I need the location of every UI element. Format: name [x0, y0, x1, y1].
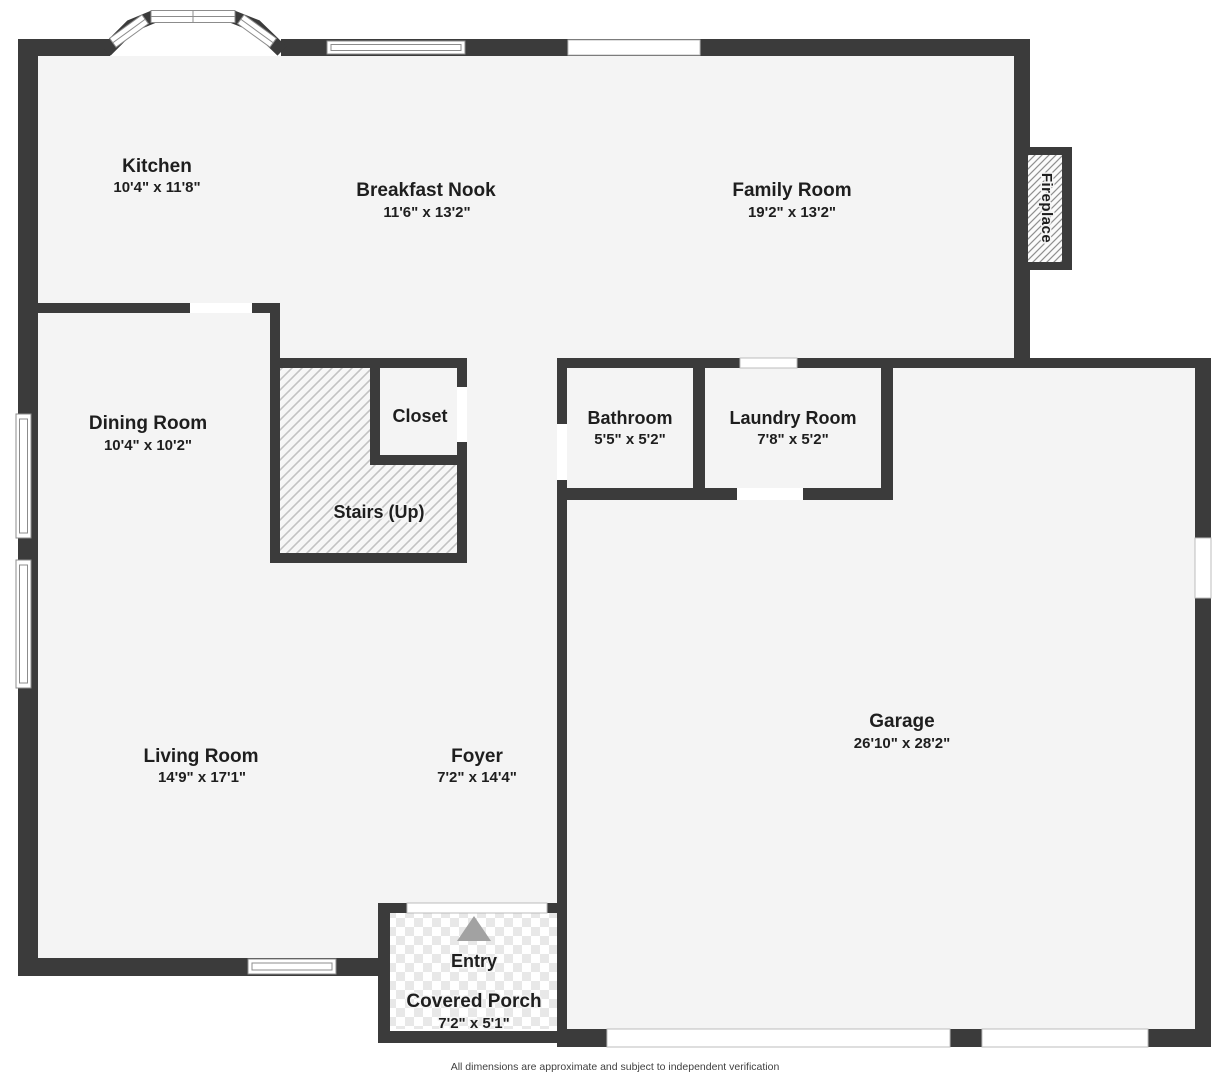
- living-left-window: [16, 560, 31, 688]
- room-label-laundry: Laundry Room: [729, 408, 856, 428]
- room-dims-family-room: 19'2" x 13'2": [748, 204, 836, 221]
- room-dims-foyer: 7'2" x 14'4": [437, 769, 517, 786]
- dining-kitchen-opening: [190, 303, 252, 313]
- room-label-living-room: Living Room: [143, 746, 258, 767]
- fireplace: Fireplace: [1024, 147, 1072, 270]
- room-label-garage: Garage: [869, 711, 934, 732]
- garage-right-window: [1195, 538, 1211, 598]
- bay-window: [106, 11, 282, 52]
- room-dims-dining-room: 10'4" x 10'2": [104, 437, 192, 454]
- room-label-foyer: Foyer: [451, 746, 503, 767]
- bay-window-center: [151, 11, 235, 23]
- floor-plan: Fireplace Kitchen 10'4" x 11'8" Breakfas…: [0, 0, 1230, 1080]
- room-label-closet: Closet: [392, 406, 447, 426]
- bathroom-left-window: [557, 424, 567, 480]
- room-dims-laundry: 7'8" x 5'2": [757, 431, 828, 448]
- family-room-top-window: [568, 40, 700, 55]
- room-label-breakfast-nook: Breakfast Nook: [356, 180, 496, 201]
- floor-plan-svg: Fireplace Kitchen 10'4" x 11'8" Breakfas…: [0, 0, 1230, 1080]
- kitchen-top-window: [327, 41, 465, 54]
- room-label-stairs: Stairs (Up): [333, 502, 424, 522]
- entry-label: Entry: [451, 951, 497, 971]
- dining-left-window: [16, 414, 31, 538]
- entry-door-opening: [407, 903, 547, 913]
- living-bottom-window: [248, 959, 336, 974]
- garage-door-1: [607, 1029, 950, 1047]
- room-dims-living-room: 14'9" x 17'1": [158, 769, 246, 786]
- garage-door-2: [982, 1029, 1148, 1047]
- room-label-bathroom: Bathroom: [588, 408, 673, 428]
- closet-door-opening: [457, 387, 467, 442]
- disclaimer-text: All dimensions are approximate and subje…: [451, 1061, 780, 1073]
- room-dims-kitchen: 10'4" x 11'8": [113, 179, 200, 196]
- laundry-top-window: [740, 358, 797, 368]
- room-label-kitchen: Kitchen: [122, 156, 192, 177]
- bay-window-left: [110, 15, 149, 47]
- room-dims-bathroom: 5'5" x 5'2": [594, 431, 665, 448]
- room-label-covered-porch: Covered Porch: [406, 991, 541, 1012]
- laundry-door-opening: [737, 488, 803, 500]
- room-label-dining-room: Dining Room: [89, 413, 207, 434]
- room-dims-garage: 26'10" x 28'2": [854, 735, 950, 752]
- fireplace-label: Fireplace: [1038, 173, 1055, 243]
- room-dims-covered-porch: 7'2" x 5'1": [438, 1015, 509, 1032]
- room-dims-breakfast-nook: 11'6" x 13'2": [383, 204, 470, 221]
- room-label-family-room: Family Room: [732, 180, 851, 201]
